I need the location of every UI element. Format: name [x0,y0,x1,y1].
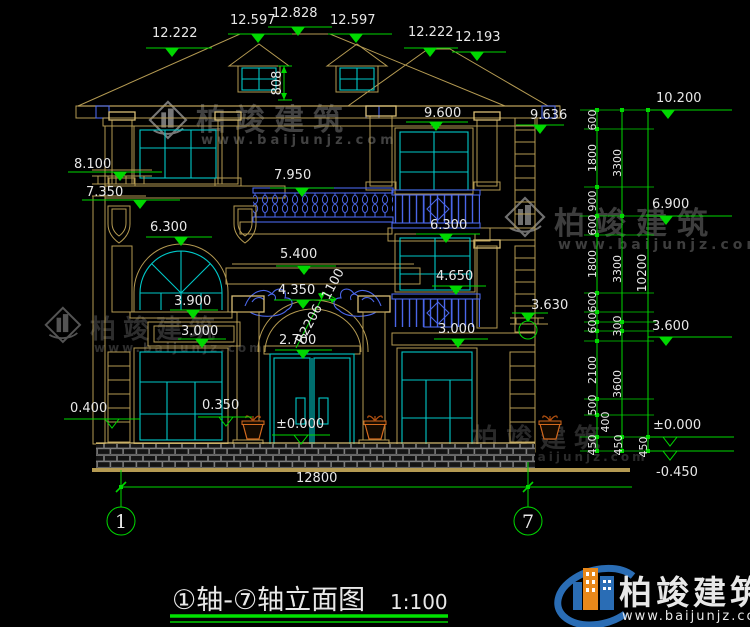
svg-text:7: 7 [522,511,534,533]
svg-text:3.600: 3.600 [652,319,689,334]
elevation-label: 12.222 [408,25,454,40]
svg-text:300: 300 [611,316,624,337]
drawing-surface: 柏竣建筑 www.baijunjz.com 柏竣建筑 www.baijunjz.… [0,0,750,627]
svg-text:600: 600 [586,110,599,131]
terrace-balustrade [253,188,393,222]
svg-text:808: 808 [270,71,285,96]
svg-text:www.baijunjz.com: www.baijunjz.com [201,133,398,148]
elevation-label: 12.193 [455,30,501,45]
planter-pot-icon [242,416,264,439]
svg-text:3300: 3300 [611,255,624,283]
svg-text:-0.450: -0.450 [656,465,698,480]
watermark-logo-icon [506,198,544,236]
elevation-label: 12.828 [272,6,318,21]
axis-bubble-7: 7 [514,507,542,535]
svg-text:2.700: 2.700 [279,333,316,348]
svg-text:±0.000: ±0.000 [276,417,324,432]
window-3f-right [395,128,473,194]
svg-text:3.000: 3.000 [181,324,218,339]
svg-text:10200: 10200 [635,254,649,292]
svg-text:600: 600 [586,215,599,236]
svg-text:3.000: 3.000 [438,322,475,337]
datum-markers-right: 10.200 6.900 3.600 ±0.000 -0.450 [648,91,734,480]
svg-text:4.350: 4.350 [278,283,315,298]
dimension-chains-right: 600 1800 900 600 1800 600 600 2100 500 4… [580,108,656,458]
cad-elevation-drawing: 柏竣建筑 www.baijunjz.com 柏竣建筑 www.baijunjz.… [0,0,750,627]
shield-ornament-icon [108,206,130,243]
svg-text:3300: 3300 [611,149,624,177]
planter-pot-icon [364,416,386,439]
svg-text:600: 600 [586,292,599,313]
svg-text:1800: 1800 [586,144,599,172]
svg-text:600: 600 [586,313,599,334]
entry-double-door [270,354,354,454]
svg-text:400: 400 [599,412,612,433]
brand-logo: 柏竣建筑 www.baijunjz.com [558,568,750,625]
svg-text:0.400: 0.400 [70,401,107,416]
svg-text:±0.000: ±0.000 [653,418,701,433]
svg-text:5.400: 5.400 [280,247,317,262]
svg-text:9.600: 9.600 [424,106,461,121]
window-1f-right [397,348,477,452]
svg-text:12800: 12800 [296,471,337,486]
svg-text:6.900: 6.900 [652,197,689,212]
title-text: ①轴-⑦轴立面图 [172,585,365,616]
svg-text:9.636: 9.636 [530,108,567,123]
svg-text:6.300: 6.300 [430,218,467,233]
svg-text:3.630: 3.630 [531,298,568,313]
svg-text:2100: 2100 [586,356,599,384]
svg-text:450: 450 [586,435,599,456]
svg-text:10.200: 10.200 [656,91,702,106]
svg-text:450: 450 [612,435,625,456]
svg-text:4.650: 4.650 [436,269,473,284]
svg-text:7.950: 7.950 [274,168,311,183]
shield-ornament-icon [234,206,256,243]
watermark-right: 柏竣建筑 www.baijunjz.com [506,198,750,253]
watermark-top: 柏竣建筑 www.baijunjz.com [150,102,398,148]
window-1f-left [134,348,228,444]
brand-name: 柏竣建筑 [619,573,750,612]
title-scale: 1:100 [390,590,448,614]
watermark-logo-icon [150,102,186,138]
svg-text:7.350: 7.350 [86,185,123,200]
svg-text:900: 900 [586,191,599,212]
elevation-label: 12.597 [330,13,376,28]
axis-bubble-1: 1 [107,507,135,535]
dim-dormer-height: 808 [270,66,292,100]
gutter-bracket-icon [96,106,109,118]
brand-url: www.baijunjz.com [622,609,750,624]
svg-text:6.300: 6.300 [150,220,187,235]
svg-text:3600: 3600 [611,370,624,398]
elevation-label: 12.597 [230,13,276,28]
drawing-title: ①轴-⑦轴立面图 1:100 [170,585,448,622]
watermark-logo-icon [46,308,80,342]
svg-text:1: 1 [115,511,127,533]
dormer-right [327,44,387,92]
svg-text:0.350: 0.350 [202,398,239,413]
elevation-label: 12.222 [152,26,198,41]
svg-text:500: 500 [586,395,599,416]
svg-text:3.900: 3.900 [174,294,211,309]
svg-text:1800: 1800 [586,250,599,278]
svg-text:450: 450 [637,437,650,458]
balcony-railing-2f [392,294,535,345]
svg-text:8.100: 8.100 [74,157,111,172]
corner-quoins-right-2f [515,246,535,332]
